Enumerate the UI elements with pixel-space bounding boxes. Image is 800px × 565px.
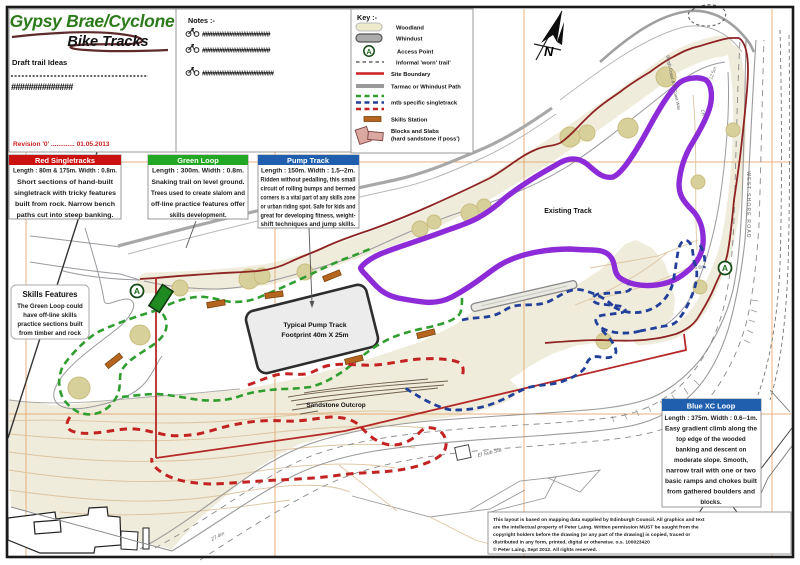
- svg-text:are the intellectual property: are the intellectual property of Peter L…: [493, 525, 699, 531]
- svg-text:Pump Track: Pump Track: [287, 156, 330, 165]
- svg-text:singletrack with tricky featur: singletrack with tricky features: [14, 190, 117, 197]
- svg-text:off-line practice features off: off-line practice features offer: [151, 201, 246, 208]
- svg-text:Short sections of hand-built: Short sections of hand-built: [17, 179, 113, 186]
- svg-text:Trees used to create slalom an: Trees used to create slalom and: [151, 190, 245, 197]
- svg-text:distributed in any form, print: distributed in any form, printed, digita…: [493, 540, 650, 546]
- svg-text:Skills Features: Skills Features: [22, 290, 78, 299]
- svg-text:from timber and rock: from timber and rock: [19, 330, 81, 337]
- svg-text:narrow trail with one or two: narrow trail with one or two: [666, 468, 756, 475]
- svg-text:basic ramps and chokes built: basic ramps and chokes built: [665, 478, 757, 485]
- svg-text:built from rock. Narrow bench: built from rock. Narrow bench: [15, 201, 115, 208]
- svg-text:Easy gradient climb along the: Easy gradient climb along the: [665, 426, 758, 433]
- svg-text:Blue XC Loop: Blue XC Loop: [687, 402, 736, 411]
- svg-text:Length : 300m. Width : 0.8m.: Length : 300m. Width : 0.8m.: [152, 168, 244, 175]
- svg-text:have off-line skills: have off-line skills: [23, 312, 77, 319]
- svg-text:corners is a vital part of any: corners is a vital part of any skills zo…: [261, 195, 356, 202]
- svg-text:Green Loop: Green Loop: [177, 156, 219, 165]
- svg-text:© Peter Laing, Sept 2012. All: © Peter Laing, Sept 2012. All rights res…: [493, 546, 598, 553]
- svg-text:blocks.: blocks.: [700, 499, 722, 506]
- svg-text:Ridden without pedalling, this: Ridden without pedalling, this small: [261, 177, 356, 184]
- svg-text:shift techniques and jump skil: shift techniques and jump skills.: [261, 221, 356, 228]
- svg-text:The Green Loop could: The Green Loop could: [17, 303, 83, 310]
- svg-text:from gathered boulders and: from gathered boulders and: [667, 489, 755, 496]
- svg-text:practice sections built: practice sections built: [17, 321, 82, 328]
- svg-text:Length : 150m. Width : 1.5--2: Length : 150m. Width : 1.5--2m.: [261, 168, 355, 175]
- svg-text:Length : 80m & 175m. Width :: Length : 80m & 175m. Width : 0.8m.: [13, 168, 117, 175]
- svg-text:copyright holders before the d: copyright holders before the drawing (or…: [493, 532, 690, 538]
- svg-text:paths cut into steep banking.: paths cut into steep banking.: [17, 212, 114, 219]
- svg-text:or urban riding spot. Safe for: or urban riding spot. Safe for kids and: [261, 204, 356, 211]
- svg-text:Red Singletracks: Red Singletracks: [35, 156, 95, 165]
- svg-text:Snaking trail on level ground.: Snaking trail on level ground.: [152, 179, 245, 186]
- svg-text:Length : 375m. Width : 0.6--1: Length : 375m. Width : 0.6--1m.: [665, 415, 758, 422]
- svg-text:skills development.: skills development.: [169, 212, 226, 219]
- svg-text:great for developing fitness,: great for developing fitness, weight-: [261, 213, 356, 220]
- svg-text:This layout is based on mappin: This layout is based on mapping data sup…: [493, 517, 705, 523]
- svg-text:circuit of rolling bumps and b: circuit of rolling bumps and bermed: [261, 186, 356, 193]
- svg-text:banking and descent on: banking and descent on: [676, 447, 747, 454]
- svg-text:moderate slope. Smooth,: moderate slope. Smooth,: [674, 457, 748, 464]
- svg-text:top edge of the wooded: top edge of the wooded: [676, 436, 746, 443]
